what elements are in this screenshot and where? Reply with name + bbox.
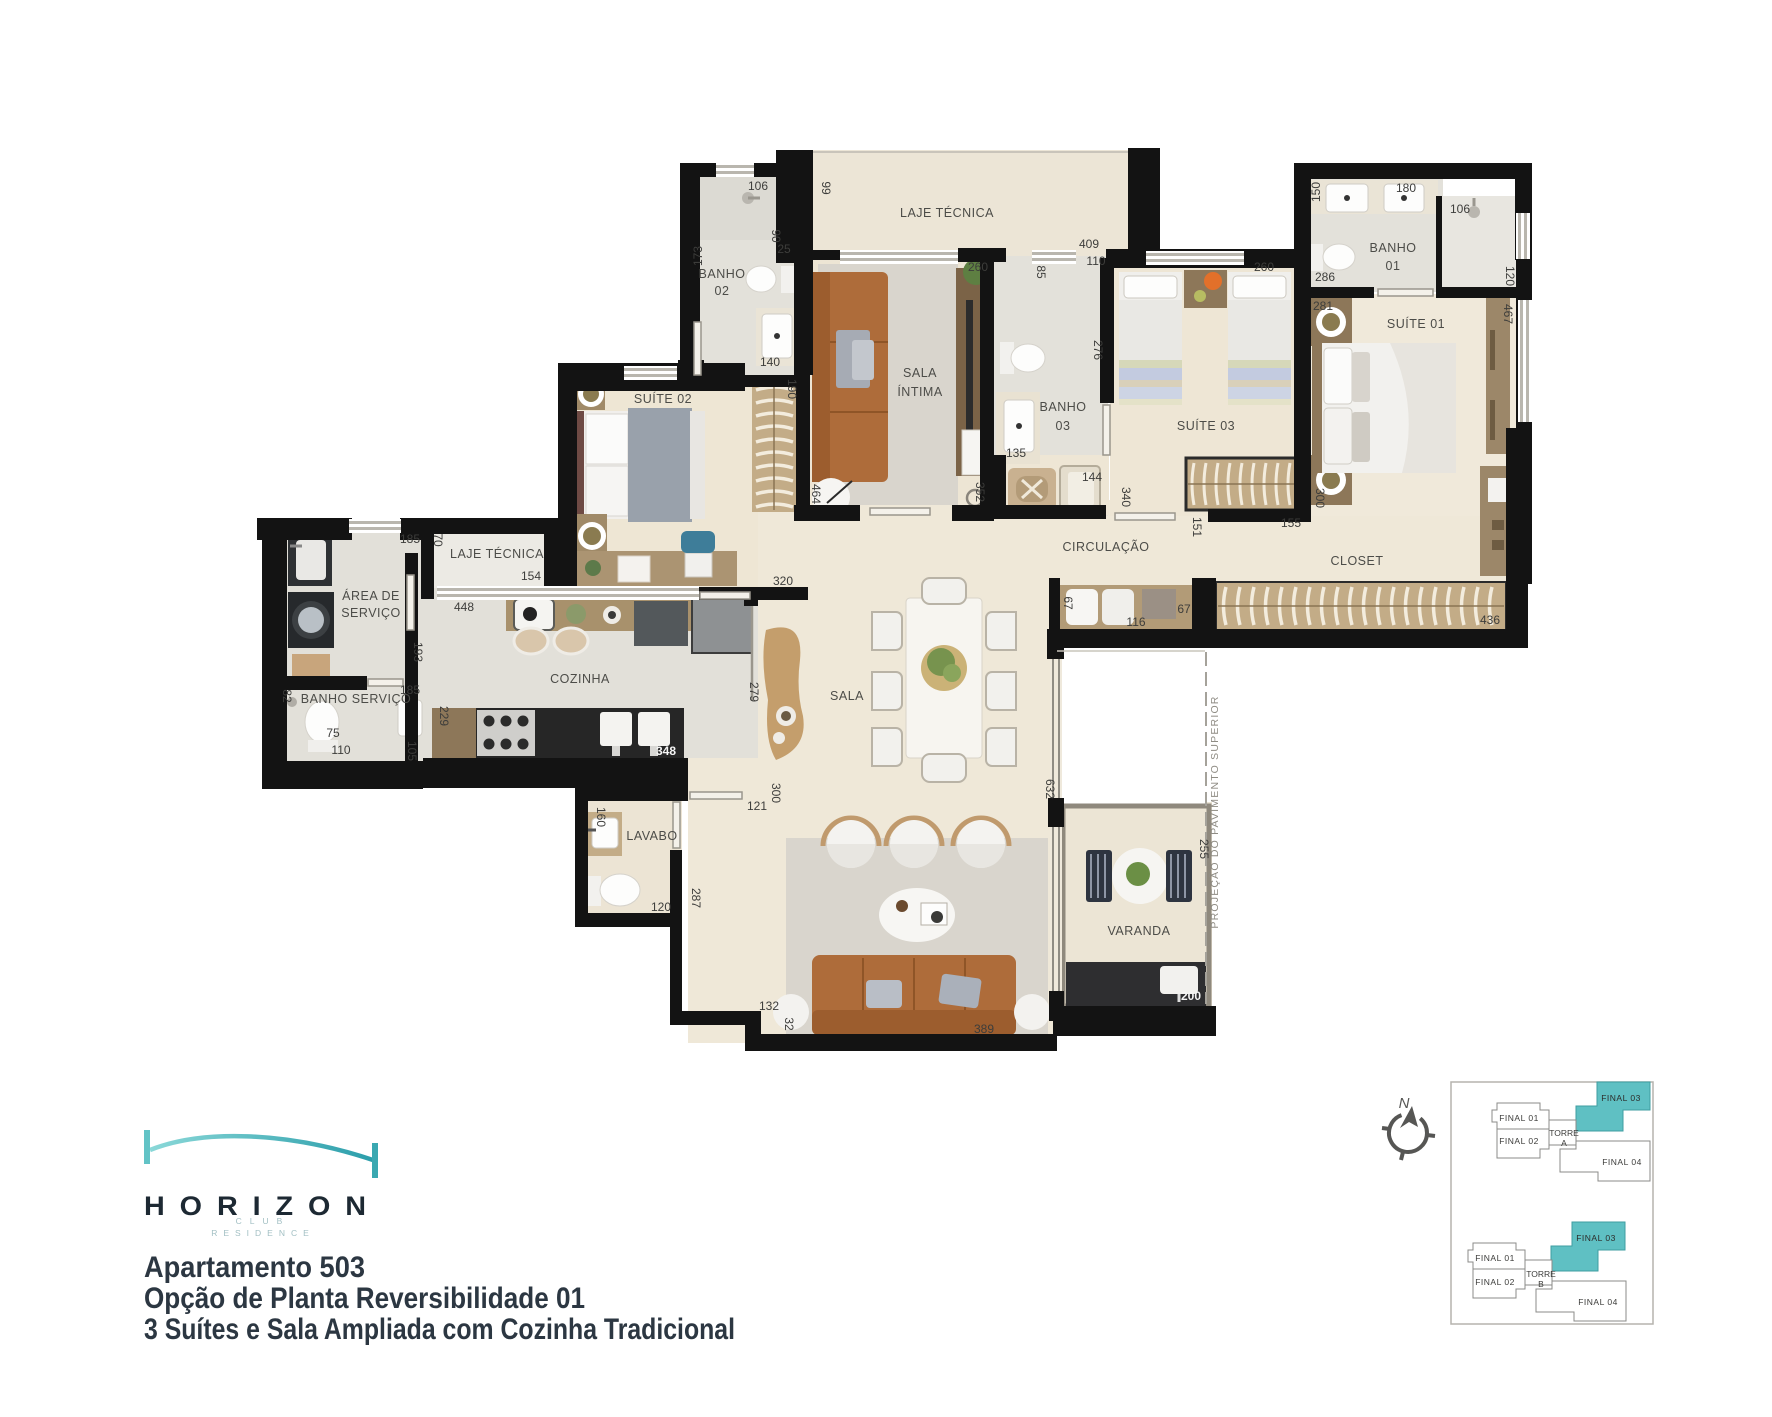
svg-text:TORRE: TORRE [1549,1128,1579,1138]
svg-text:106: 106 [1450,202,1470,216]
svg-text:BANHO SERVIÇO: BANHO SERVIÇO [301,692,411,706]
svg-text:N: N [1399,1095,1410,1112]
svg-text:132: 132 [759,999,779,1013]
svg-text:FINAL 02: FINAL 02 [1499,1136,1539,1146]
svg-text:25: 25 [777,242,791,256]
svg-text:106: 106 [748,179,768,193]
svg-text:116: 116 [1126,615,1145,629]
svg-text:70: 70 [431,533,445,547]
svg-text:185: 185 [400,683,420,697]
svg-text:CIRCULAÇÃO: CIRCULAÇÃO [1063,540,1150,554]
svg-text:FINAL 04: FINAL 04 [1602,1157,1642,1167]
svg-text:135: 135 [1006,446,1026,460]
svg-text:121: 121 [747,799,767,813]
svg-text:FINAL 03: FINAL 03 [1576,1233,1616,1243]
svg-text:110: 110 [1086,254,1105,268]
svg-text:260: 260 [968,260,988,274]
svg-text:144: 144 [1082,470,1102,484]
svg-text:448: 448 [454,600,474,614]
svg-text:32: 32 [782,1017,796,1031]
svg-text:FINAL 03: FINAL 03 [1601,1093,1641,1103]
svg-text:193: 193 [411,642,425,662]
svg-text:SUÍTE 03: SUÍTE 03 [1177,418,1235,433]
svg-text:173: 173 [691,246,705,266]
svg-text:FINAL 01: FINAL 01 [1475,1253,1515,1263]
svg-text:99: 99 [819,181,833,195]
svg-text:464: 464 [809,484,823,504]
svg-text:CLOSET: CLOSET [1330,554,1383,568]
svg-text:154: 154 [521,569,541,583]
svg-text:229: 229 [437,706,451,726]
svg-text:SALA: SALA [903,366,937,380]
svg-text:RESIDENCE: RESIDENCE [211,1228,315,1238]
svg-text:160: 160 [594,807,608,827]
svg-text:SERVIÇO: SERVIÇO [341,606,401,620]
svg-text:02: 02 [715,284,730,298]
svg-text:352: 352 [973,482,987,502]
svg-text:67: 67 [1061,596,1075,610]
svg-text:BANHO: BANHO [1040,400,1087,414]
svg-text:255: 255 [1197,839,1211,859]
svg-text:3 Suítes e Sala Ampliada com C: 3 Suítes e Sala Ampliada com Cozinha Tra… [144,1313,735,1346]
svg-text:190: 190 [785,379,799,399]
svg-text:260: 260 [1254,260,1274,274]
svg-text:TORRE: TORRE [1526,1269,1556,1279]
svg-text:200: 200 [1181,989,1201,1003]
svg-text:150: 150 [1309,182,1323,202]
svg-text:75: 75 [326,726,340,740]
svg-text:LAJE TÉCNICA: LAJE TÉCNICA [900,205,994,220]
svg-text:436: 436 [1480,613,1500,627]
svg-text:FINAL 04: FINAL 04 [1578,1297,1618,1307]
svg-text:FINAL 01: FINAL 01 [1499,1113,1539,1123]
svg-text:01: 01 [1386,259,1401,273]
svg-text:151: 151 [1190,517,1204,537]
svg-text:340: 340 [1119,487,1133,507]
svg-text:300: 300 [1313,488,1327,508]
svg-text:BANHO: BANHO [1370,241,1417,255]
svg-text:SUÍTE 02: SUÍTE 02 [634,391,692,406]
svg-text:PROJEÇÃO DO PAVIMENTO SUPERIOR: PROJEÇÃO DO PAVIMENTO SUPERIOR [1208,695,1221,928]
svg-text:VARANDA: VARANDA [1107,924,1170,938]
svg-text:286: 286 [1315,270,1335,284]
svg-text:Apartamento 503: Apartamento 503 [144,1251,365,1284]
svg-text:348: 348 [656,744,676,758]
svg-text:140: 140 [760,355,780,369]
svg-text:155: 155 [1281,516,1301,530]
svg-text:LAVABO: LAVABO [626,829,677,843]
svg-text:SALA: SALA [830,689,864,703]
svg-text:SUÍTE 01: SUÍTE 01 [1387,316,1445,331]
svg-text:320: 320 [773,574,793,588]
svg-text:FINAL 02: FINAL 02 [1475,1277,1515,1287]
svg-text:300: 300 [769,783,783,803]
svg-text:B: B [1538,1279,1544,1289]
svg-text:279: 279 [747,682,761,702]
svg-text:180: 180 [1396,181,1416,195]
svg-text:120: 120 [651,900,671,914]
svg-text:467: 467 [1501,304,1515,324]
svg-text:A: A [1561,1138,1567,1148]
svg-text:CLUB: CLUB [236,1216,291,1226]
svg-text:281: 281 [1313,299,1333,313]
svg-text:ÁREA DE: ÁREA DE [342,588,400,603]
svg-text:90: 90 [769,229,783,243]
svg-text:67: 67 [1177,602,1191,616]
svg-text:632: 632 [1043,779,1057,799]
svg-text:120: 120 [1503,266,1517,286]
svg-text:105: 105 [405,741,419,761]
svg-text:110: 110 [331,743,350,757]
svg-text:ÍNTIMA: ÍNTIMA [897,384,943,399]
svg-text:185: 185 [400,532,420,546]
svg-text:COZINHA: COZINHA [550,672,610,686]
svg-text:BANHO: BANHO [699,267,746,281]
svg-text:82: 82 [280,689,294,703]
svg-text:85: 85 [1034,265,1048,279]
svg-text:276: 276 [1091,340,1105,360]
svg-text:287: 287 [689,888,703,908]
svg-text:03: 03 [1056,419,1071,433]
svg-text:LAJE TÉCNICA: LAJE TÉCNICA [450,546,544,561]
svg-text:Opção de Planta Reversibilidad: Opção de Planta Reversibilidade 01 [144,1282,585,1315]
svg-text:409: 409 [1079,237,1099,251]
svg-text:389: 389 [974,1022,994,1036]
